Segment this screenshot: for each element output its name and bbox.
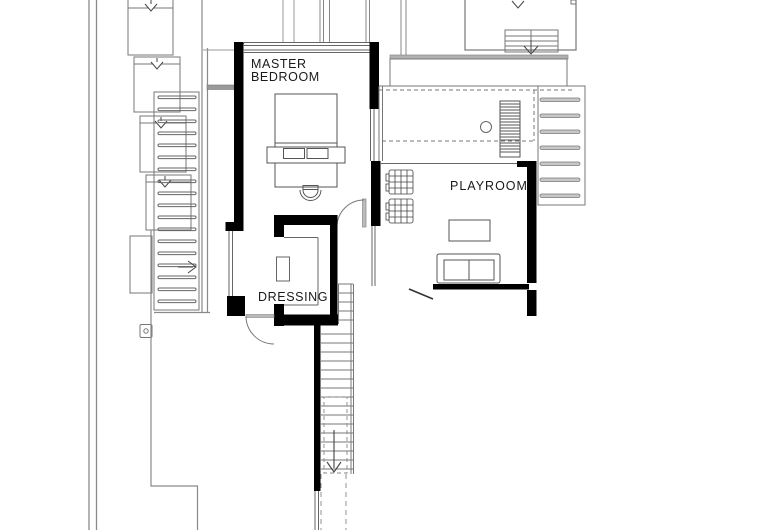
svg-text:MASTER: MASTER — [251, 57, 307, 71]
svg-text:DRESSING: DRESSING — [258, 290, 328, 304]
svg-text:PLAYROOM: PLAYROOM — [450, 179, 528, 193]
svg-text:BEDROOM: BEDROOM — [251, 70, 320, 84]
